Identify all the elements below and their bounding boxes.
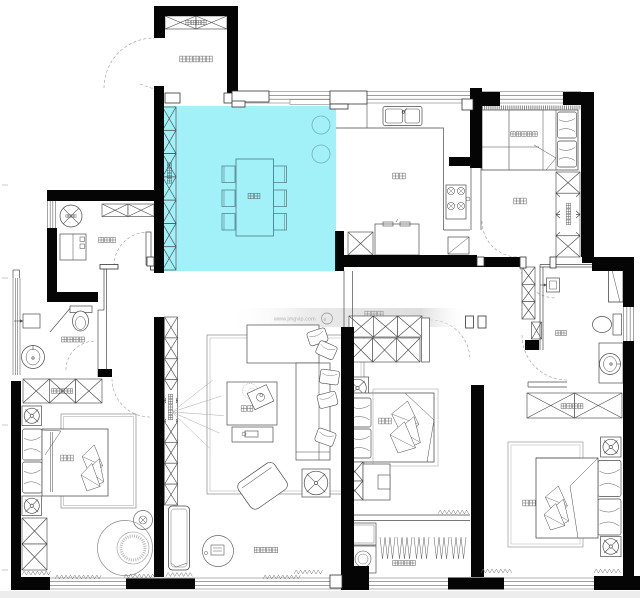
svg-text:www.jmgvip.com: www.jmgvip.com	[273, 317, 316, 323]
svg-text:e: e	[324, 317, 327, 323]
